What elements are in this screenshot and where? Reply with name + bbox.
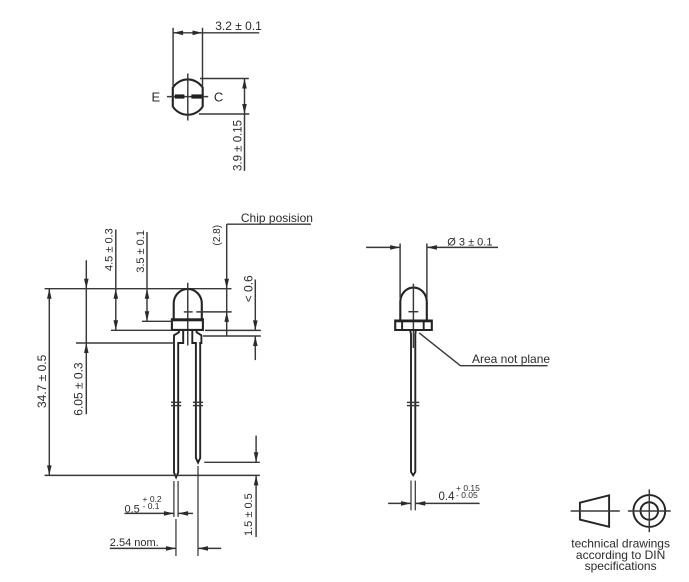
svg-text:3.5 ± 0.1: 3.5 ± 0.1 [135, 230, 147, 273]
svg-text:0.5: 0.5 [125, 504, 140, 516]
svg-text:3.2 ± 0.1: 3.2 ± 0.1 [215, 19, 262, 33]
svg-text:specifications: specifications [585, 559, 657, 573]
svg-text:- 0.05: - 0.05 [456, 490, 478, 500]
svg-text:6.05 ± 0.3: 6.05 ± 0.3 [72, 362, 86, 416]
svg-text:< 0.6: < 0.6 [241, 275, 255, 302]
svg-text:(2.8): (2.8) [212, 225, 223, 246]
svg-text:E: E [152, 90, 161, 105]
svg-text:Ø 3 ± 0.1: Ø 3 ± 0.1 [447, 237, 492, 249]
svg-text:0.4: 0.4 [439, 491, 456, 503]
svg-text:Chip posision: Chip posision [241, 211, 313, 225]
svg-text:3.9 ± 0.15: 3.9 ± 0.15 [233, 120, 245, 171]
svg-text:1.5 ± 0.5: 1.5 ± 0.5 [243, 493, 255, 536]
svg-text:4.5 ± 0.3: 4.5 ± 0.3 [104, 228, 116, 271]
svg-text:2.54 nom.: 2.54 nom. [110, 537, 159, 549]
svg-text:C: C [214, 90, 223, 105]
svg-text:34.7 ± 0.5: 34.7 ± 0.5 [35, 354, 49, 408]
svg-text:Area not plane: Area not plane [472, 352, 550, 366]
svg-text:- 0.1: - 0.1 [143, 501, 160, 511]
